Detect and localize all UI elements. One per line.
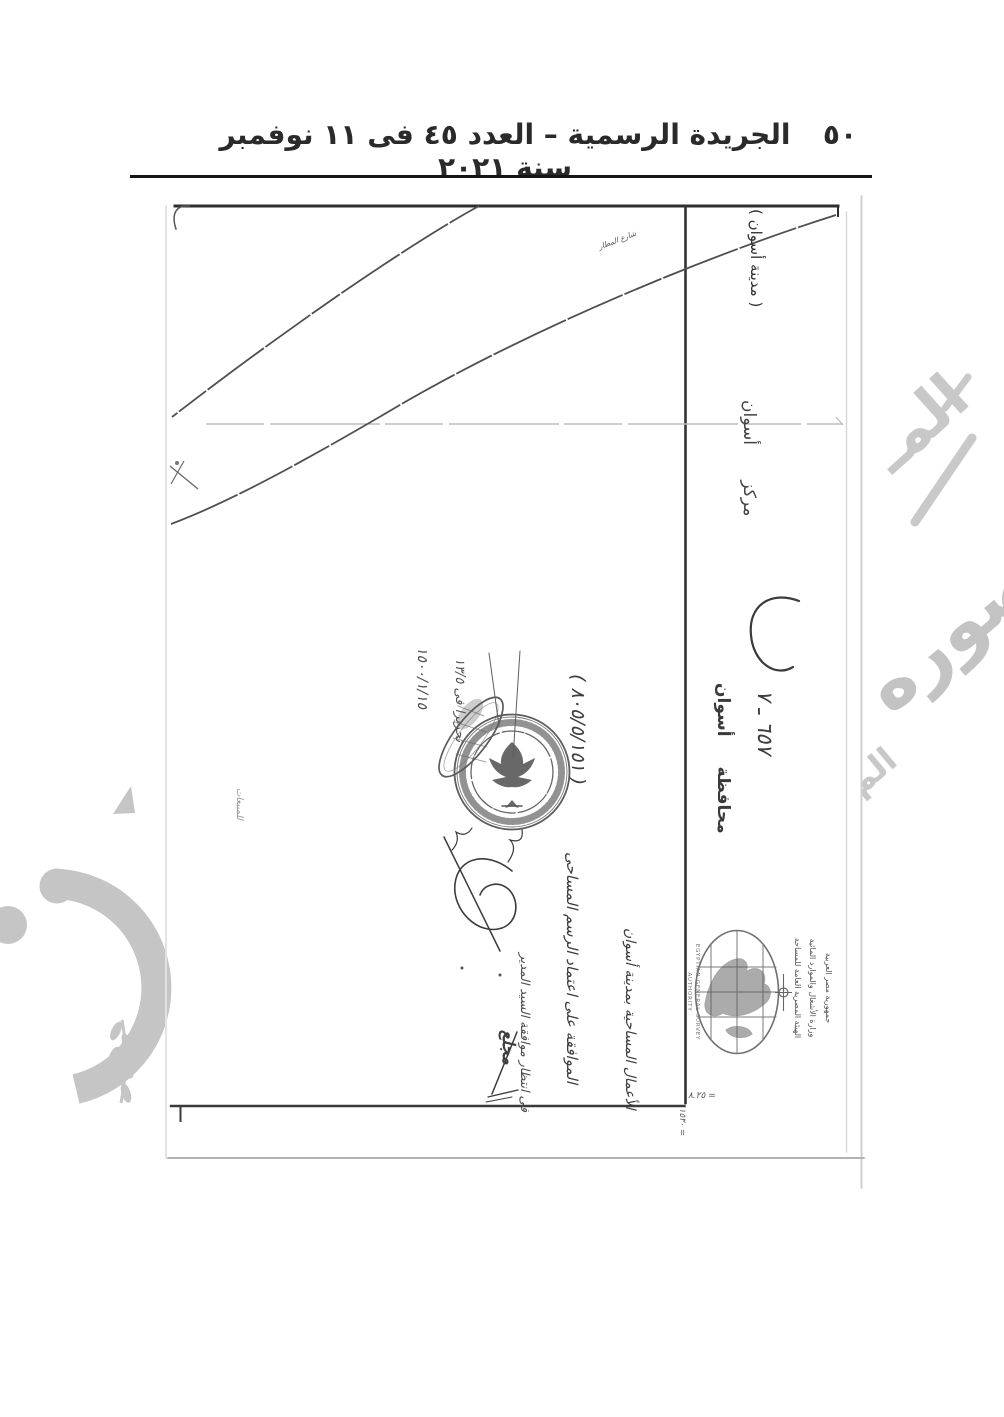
logo-english-caption: EGYPTIAN GENERAL SURVEY AUTHORITY (685, 936, 700, 1048)
road-curves (171, 206, 836, 524)
release-note: تحريرا فى ١٣/٥ (453, 658, 466, 742)
gazette-page: المـ صوره الم الجريدة الرسمية – العدد ٤٥… (0, 0, 1004, 1417)
logo-arabic-line1: جمهورية مصر العربية (821, 902, 837, 1074)
logo-arabic-line2: وزارة الأشغال والموارد المائية (805, 902, 821, 1074)
decree-number: ( ٨٠٥/٥/١٥١ ) (568, 674, 587, 785)
logo-arabic-line3: الهيئة المصرية العامة للمساحة (790, 902, 806, 1074)
dimension-note-b: ١٥٣٠ = (678, 1108, 687, 1136)
handwritten-symbol (751, 598, 799, 671)
junction-mark (170, 461, 198, 489)
official-stamp-icon (429, 651, 570, 830)
handwritten-pending: فى انتظار موافقة السيد المدير (519, 953, 532, 1112)
handwritten-approval: الموافقة على اعتماد الرسم المساحى (564, 852, 579, 1084)
logo-arabic-caption: جمهورية مصر العربية وزارة الأشغال والموا… (790, 902, 837, 1074)
governorate-label: محافظة أسوان (714, 683, 731, 834)
handwritten-signature: مجلع (499, 1030, 516, 1065)
handwritten-works: الأعمال المساحية بمدينة أسوان (623, 928, 637, 1110)
reference-number: ٦٥٧ ـ ٧ (754, 690, 775, 755)
city-label: ( مدينة أسوان ) (748, 209, 763, 307)
sales-note: للمبيعات (234, 788, 243, 820)
eagle-icon (489, 742, 535, 808)
survey-map-graphics (0, 0, 1004, 1417)
district-label: مركز أسوان (740, 400, 757, 516)
road-curve-lower (171, 215, 836, 524)
survey-authority-logo-icon (696, 931, 793, 1054)
date-note: ١٥٠٠/١/١٥ (415, 647, 429, 709)
dimension-note-a: ٨.٢٥ = (688, 1091, 716, 1101)
